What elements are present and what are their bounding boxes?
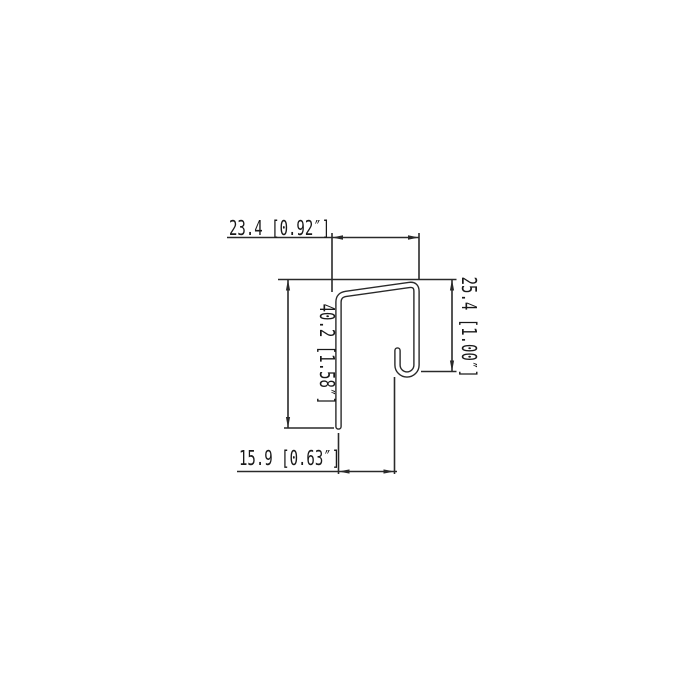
arrowhead-bottom-left xyxy=(339,469,350,473)
dim-label-top-width: 23.4 [0.92″] xyxy=(229,218,330,238)
profile-outline-outer xyxy=(339,285,417,427)
arrowhead-left-down xyxy=(286,417,290,428)
dim-label-right-height: 25.4 [1.00″] xyxy=(459,277,479,378)
dim-label-bottom-width: 15.9 [0.63″] xyxy=(239,448,340,468)
arrowhead-left-up xyxy=(286,280,290,291)
arrowhead-right-up xyxy=(450,280,454,291)
arrowhead-right-down xyxy=(450,361,454,372)
drawing-canvas: 23.4 [0.92″] 40.2 [1.58″] 25.4 [1.00″] 1… xyxy=(0,0,700,700)
profile-sheet-core xyxy=(339,285,417,427)
profile-drawing-svg xyxy=(0,0,700,700)
arrowhead-top-left xyxy=(332,235,343,239)
arrowhead-bottom-right xyxy=(384,469,395,473)
dim-label-left-height: 40.2 [1.58″] xyxy=(317,304,337,405)
arrowhead-top-right xyxy=(408,235,419,239)
